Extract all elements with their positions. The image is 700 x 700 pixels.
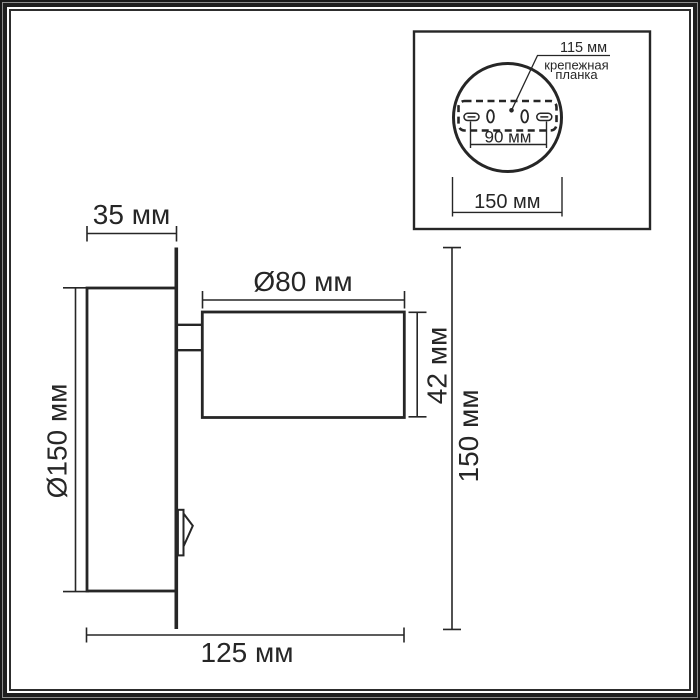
dimension-slot-spacing: 90 мм (471, 122, 547, 149)
screw-slot-right (537, 113, 552, 120)
dimension-label-overall-height: 150 мм (453, 390, 484, 483)
dimension-label-overall-width: 125 мм (201, 637, 294, 668)
bracket-name-line2: планка (555, 67, 598, 82)
power-switch (178, 510, 193, 556)
dimension-plate-depth: 35 мм (87, 199, 177, 242)
bracket-center-point (509, 108, 514, 113)
dimension-base-diameter: Ø150 мм (42, 288, 90, 592)
inset-label-plate-width: 115 мм (560, 40, 607, 56)
screw-hole-left (487, 110, 494, 122)
dimension-label-base-diameter: Ø150 мм (42, 384, 73, 499)
lamp-arm (178, 325, 204, 350)
dimension-label-plate-depth: 35 мм (93, 199, 170, 230)
inset-label-slot-spacing: 90 мм (484, 128, 531, 147)
lamp-head-cylinder (202, 312, 404, 418)
switch-lever (184, 514, 193, 547)
dimension-label-head-diameter: Ø80 мм (253, 266, 352, 297)
dimension-plate-diameter: 150 мм (453, 177, 563, 217)
dimension-head-diameter: Ø80 мм (203, 266, 405, 309)
dimension-label-head-length: 42 мм (422, 327, 453, 404)
mounting-plate-inset: 115 мм крепежная планка 90 мм 150 мм (414, 32, 650, 230)
lamp-side-view (87, 248, 404, 630)
screw-hole-right (521, 110, 528, 122)
dimension-overall-width: 125 мм (87, 628, 405, 669)
dimension-overall-height: 150 мм (443, 248, 484, 630)
lamp-dimension-diagram: 35 мм Ø150 мм Ø80 мм 42 мм 1 (0, 0, 700, 700)
dimension-head-length: 42 мм (409, 312, 453, 417)
lamp-base-body (87, 288, 176, 591)
dimension-drawing-page: 35 мм Ø150 мм Ø80 мм 42 мм 1 (0, 0, 700, 700)
screw-slot-left (464, 113, 479, 120)
inset-label-plate-diameter: 150 мм (474, 191, 540, 213)
mounting-bracket-outline (459, 101, 557, 131)
